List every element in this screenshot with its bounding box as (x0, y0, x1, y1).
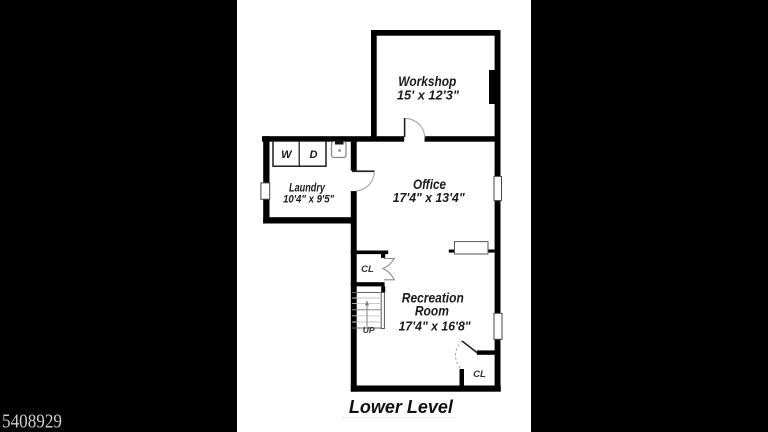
svg-text:10'4" x 9'5": 10'4" x 9'5" (283, 194, 335, 206)
svg-text:UP: UP (363, 325, 375, 335)
svg-text:17'4" x 16'8": 17'4" x 16'8" (399, 319, 472, 333)
svg-text:5408929: 5408929 (2, 411, 62, 432)
svg-text:Room: Room (415, 303, 449, 319)
svg-text:Workshop: Workshop (398, 73, 456, 89)
svg-text:Laundry: Laundry (289, 182, 325, 194)
svg-text:Office: Office (413, 176, 446, 192)
svg-text:17'4" x 13'4": 17'4" x 13'4" (393, 191, 466, 205)
svg-text:CL: CL (473, 369, 486, 380)
svg-text:CL: CL (361, 264, 374, 275)
svg-text:15' x 12'3": 15' x 12'3" (397, 89, 460, 103)
svg-text:W: W (281, 149, 293, 161)
svg-text:D: D (310, 149, 318, 161)
svg-text:Lower Level: Lower Level (349, 396, 454, 417)
